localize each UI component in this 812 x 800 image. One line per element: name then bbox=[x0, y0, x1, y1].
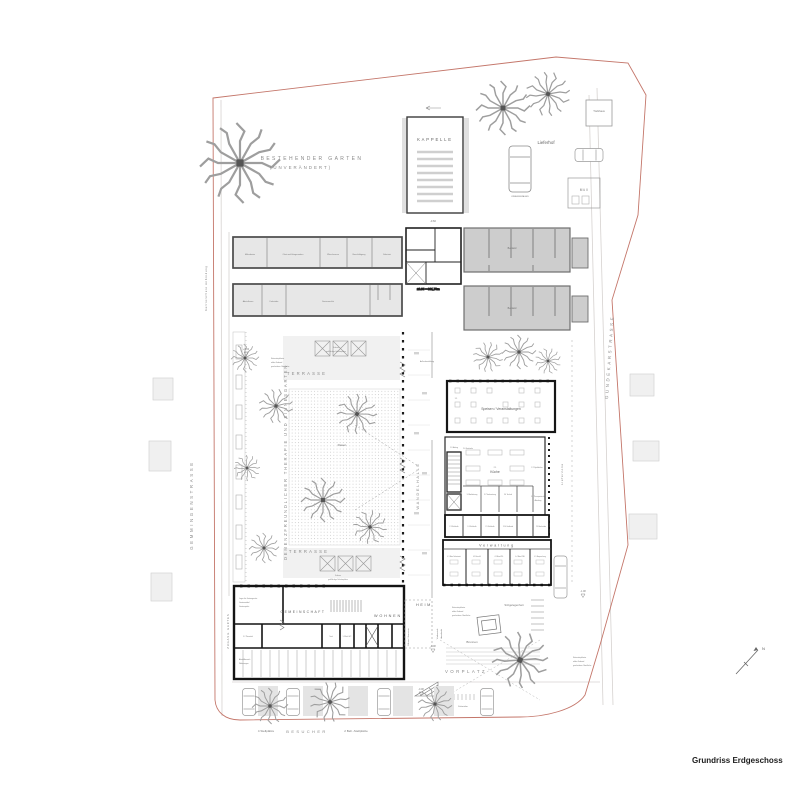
street-name-right: GUNDEKARSTRASSE bbox=[604, 315, 615, 400]
ambulance-label: KRANKENWAGEN bbox=[511, 195, 529, 198]
chapel-roof-band bbox=[464, 118, 469, 213]
site-plan-drawing: KAPPELLE -0.60 Mähroboter Obst und Hänge… bbox=[0, 0, 812, 800]
paving-note: geschnittene Oberfläche bbox=[452, 614, 470, 617]
tree-icon bbox=[502, 335, 536, 369]
delivery-yard: Trafohaus Lieferhof KRANKENWAGEN M ü l l bbox=[509, 100, 612, 208]
spots-label: 2 Beh.-Stellplätze bbox=[344, 729, 368, 733]
existing-building-1 bbox=[464, 228, 570, 272]
existing-label: Bestand bbox=[508, 307, 517, 310]
parked-car bbox=[378, 689, 391, 716]
shade-note: Schirme bbox=[333, 347, 339, 349]
storage-label: Gartenspiele bbox=[239, 605, 249, 608]
existing-garden-label: (UNVERÄNDERT) bbox=[270, 165, 332, 170]
sensory-garden: Rasen TERRASSE TERRASSE DEMENZFREUNDLICH… bbox=[233, 332, 418, 582]
garden-title: DEMENZFREUNDLICHER THERAPIE UND SINNESGA… bbox=[283, 364, 288, 560]
cold-room-label: 2.10 Umkleide bbox=[503, 526, 513, 528]
paving-note: geschnittene Oberfläche bbox=[271, 365, 289, 368]
forecourt: HEIM Vorbereich überdacht Brunnen Sitzge… bbox=[405, 600, 591, 708]
cold-room-label: 2.3 Kühlzelle bbox=[449, 526, 458, 528]
parked-car bbox=[287, 689, 300, 716]
wandelhalle: WANDELHALLE Außenbestuhlung bbox=[400, 332, 434, 598]
ambulance bbox=[509, 146, 531, 192]
existing-building-2 bbox=[464, 286, 570, 330]
accessible-path-label: barrierefreie Anbindung bbox=[204, 265, 208, 310]
seating-label: Sitzgelegenheit bbox=[504, 603, 523, 607]
neighbor-building bbox=[629, 514, 657, 539]
room-label: Fahrräder bbox=[270, 301, 279, 303]
wing-row-b bbox=[233, 284, 402, 316]
shade-note: Schirme bbox=[335, 575, 341, 577]
visitor-parking: 4 Stellplätze BESUCHER 2 Beh.-Stellplätz… bbox=[243, 686, 494, 734]
prep-room-label: 3.2 Vorbereitung bbox=[484, 493, 496, 496]
existing-annex bbox=[572, 296, 588, 322]
north-arrow bbox=[736, 647, 758, 674]
wing-row-a bbox=[233, 237, 402, 268]
waste-bin-icon bbox=[582, 196, 589, 204]
prep-room-label: 3.4 Technik bbox=[504, 494, 512, 496]
paving-note: Natursteinpflaster bbox=[573, 656, 587, 659]
wandelhalle-label: WANDELHALLE bbox=[415, 462, 420, 509]
community-building: Lager für Gartengeräte Gartenmöbel Garte… bbox=[226, 586, 410, 679]
parked-car bbox=[481, 689, 494, 716]
cold-room-label: 2.5 Kühlzelle bbox=[485, 526, 494, 528]
therapy-label: Abteilung bbox=[535, 499, 542, 502]
trafo-building bbox=[586, 100, 612, 126]
chapel-roof-band bbox=[402, 118, 407, 213]
shade-note: großflächige Schattenplätze bbox=[328, 578, 348, 581]
drinks-label: 2.6 Getränke bbox=[463, 447, 473, 450]
living-label: WOHNEN bbox=[374, 614, 402, 618]
room-label: 5.3 Beh.-WC bbox=[343, 636, 353, 638]
paving-note: wilder Verband bbox=[271, 361, 282, 364]
core-cluster: ±0.00 = 391,70m bbox=[406, 228, 461, 291]
tree-icon bbox=[476, 81, 530, 135]
kitchen-number: 2.1 bbox=[494, 467, 498, 469]
canopy-label: überdacht bbox=[440, 629, 443, 639]
lieferhof-label: Lieferhof bbox=[537, 140, 555, 145]
sheet-title: Grundriss Erdgeschoss bbox=[692, 756, 783, 765]
level-value: +0.00 bbox=[243, 348, 250, 351]
terrace-lower-label: TERRASSE bbox=[289, 549, 329, 554]
datum-level: ±0.00 = 391,70m bbox=[417, 287, 440, 291]
bikes-label: Fahrräder bbox=[458, 705, 468, 708]
room-label: Beschäftigung bbox=[353, 253, 366, 256]
existing-garden-label: BESTEHENDER GARTEN bbox=[261, 156, 364, 162]
dining-hall: 1.1 Speisen / Veranstaltungen bbox=[447, 381, 555, 432]
paving-note: Natursteinpflaster bbox=[452, 606, 466, 609]
tree-icon bbox=[200, 123, 280, 203]
visitors-label: BESUCHER bbox=[286, 729, 327, 734]
parked-car bbox=[243, 689, 256, 716]
room-label: Sakristei bbox=[383, 253, 391, 256]
neighbor-buildings bbox=[149, 374, 659, 601]
waste-enclosure bbox=[568, 178, 600, 208]
stair-core bbox=[447, 452, 461, 510]
existing-annex bbox=[572, 238, 588, 268]
cold-room-label: 2.4 Kühlzelle bbox=[467, 526, 476, 528]
folding-door-icon bbox=[400, 362, 405, 571]
chapel-level: -0.60 bbox=[430, 219, 436, 223]
paving-note: wilder Verband bbox=[452, 610, 463, 613]
level-value: -0.08 bbox=[418, 688, 424, 691]
tree-icon bbox=[520, 66, 576, 122]
neighbor-building bbox=[630, 374, 654, 396]
neighbor-building bbox=[153, 378, 173, 400]
delivery-zone-label: Lieferzone bbox=[560, 463, 564, 485]
paving-note: geschnittene Oberfläche bbox=[573, 664, 591, 667]
fountain-label: Brunnen bbox=[466, 640, 478, 644]
tree-icon bbox=[249, 533, 279, 563]
tree-icon bbox=[229, 450, 265, 486]
paving-note: Natursteinpflaster bbox=[271, 357, 285, 360]
trafo-label: Trafohaus bbox=[593, 109, 605, 113]
entry-label: HEIM bbox=[416, 603, 432, 607]
storage-area-label: Wohnungen bbox=[239, 663, 249, 665]
street-name-left: GEMMINGENSTRASSE bbox=[189, 460, 194, 550]
north-wing: Mähroboter Obst und Hängematten Wäschera… bbox=[233, 237, 402, 316]
waste-bin-icon bbox=[572, 196, 579, 204]
floor-plan-sheet: KAPPELLE -0.60 Mähroboter Obst und Hänge… bbox=[0, 0, 812, 800]
core-outline bbox=[406, 228, 461, 284]
existing-buildings: Bestand Bestand bbox=[464, 228, 588, 330]
neighbor-building bbox=[151, 573, 172, 601]
admin-label: Verwaltung bbox=[479, 544, 515, 548]
room-label: Tank bbox=[329, 636, 333, 638]
north-label: N bbox=[762, 646, 765, 651]
delivery-van bbox=[554, 556, 567, 598]
level-value: -1.08 bbox=[580, 590, 586, 593]
storage-area-label: Abstellbereich bbox=[239, 658, 250, 661]
chapel: KAPPELLE -0.60 bbox=[402, 106, 469, 223]
paving-note: wilder Verband bbox=[573, 660, 584, 663]
terrace-upper-label: TERRASSE bbox=[287, 371, 327, 376]
raised-beds bbox=[531, 600, 544, 630]
fountain bbox=[477, 615, 501, 636]
administration: Verwaltung 4.1 Büro Sekretariat 4.2 Büro… bbox=[443, 540, 567, 598]
prep-room-label: 3.1 Anlieferung bbox=[467, 493, 478, 496]
existing-label: Bestand bbox=[508, 247, 517, 250]
scullery-label: 2.2 Spülküche bbox=[531, 467, 542, 469]
spots-label: 4 Stellplätze bbox=[258, 729, 275, 733]
storage-label: Lager für Gartengeräte bbox=[239, 597, 257, 600]
room-label: Seniorenclub bbox=[322, 301, 335, 303]
outdoor-seating-note: Außenbestuhlung bbox=[420, 360, 434, 363]
neighbor-building bbox=[149, 441, 171, 471]
lawn-label: Rasen bbox=[338, 443, 347, 447]
room-label: Abstellraum bbox=[243, 300, 254, 303]
waste-label: M ü l l bbox=[580, 188, 589, 192]
kitchen-label: Küche bbox=[490, 470, 500, 474]
parked-car bbox=[575, 149, 603, 162]
forecourt-label: VORPLATZ bbox=[445, 669, 487, 674]
dining-label: Speisen / Veranstaltungen bbox=[481, 407, 521, 411]
benches bbox=[414, 352, 427, 554]
service-label: Müllraum / Hausmeister bbox=[407, 628, 410, 646]
lift-label: 1.2 Aufzug bbox=[450, 446, 458, 449]
level-value: -0.08 bbox=[430, 645, 436, 648]
room-label: Mähroboter bbox=[245, 253, 256, 256]
storage-label: Gartenmöbel bbox=[239, 601, 250, 604]
community-label: GEMEINSCHAFT bbox=[281, 610, 326, 614]
entry-arrow-icon bbox=[426, 106, 441, 110]
tree-icon bbox=[532, 345, 564, 377]
canopy-label: Vorbereich bbox=[436, 628, 439, 639]
garden-access-label: ZUGANG GARTEN bbox=[226, 613, 230, 649]
room-label: Wäscheraum bbox=[327, 254, 339, 256]
chapel-label: KAPPELLE bbox=[417, 137, 453, 142]
tree-icon bbox=[467, 336, 509, 378]
neighbor-building bbox=[633, 441, 659, 461]
room-label: Obst und Hängematten bbox=[283, 253, 304, 256]
